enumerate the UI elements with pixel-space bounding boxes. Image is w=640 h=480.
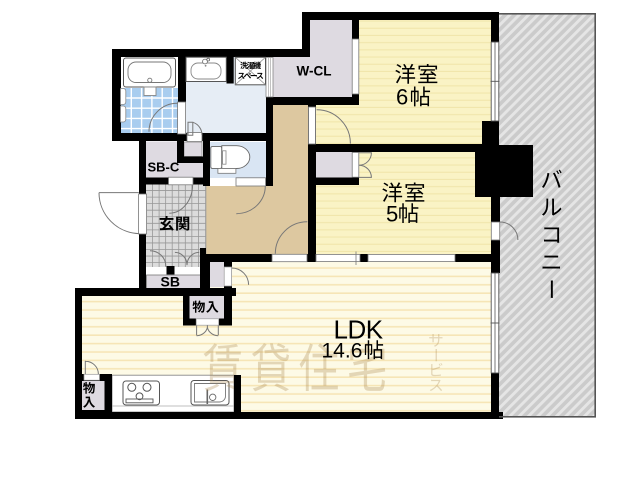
svg-text:W-CL: W-CL bbox=[297, 64, 332, 79]
svg-text:14.6: 14.6 bbox=[322, 340, 363, 363]
svg-text:5: 5 bbox=[386, 201, 398, 226]
svg-text:6: 6 bbox=[396, 85, 408, 110]
svg-text:SB: SB bbox=[161, 273, 180, 289]
svg-text:SB-C: SB-C bbox=[148, 159, 180, 174]
